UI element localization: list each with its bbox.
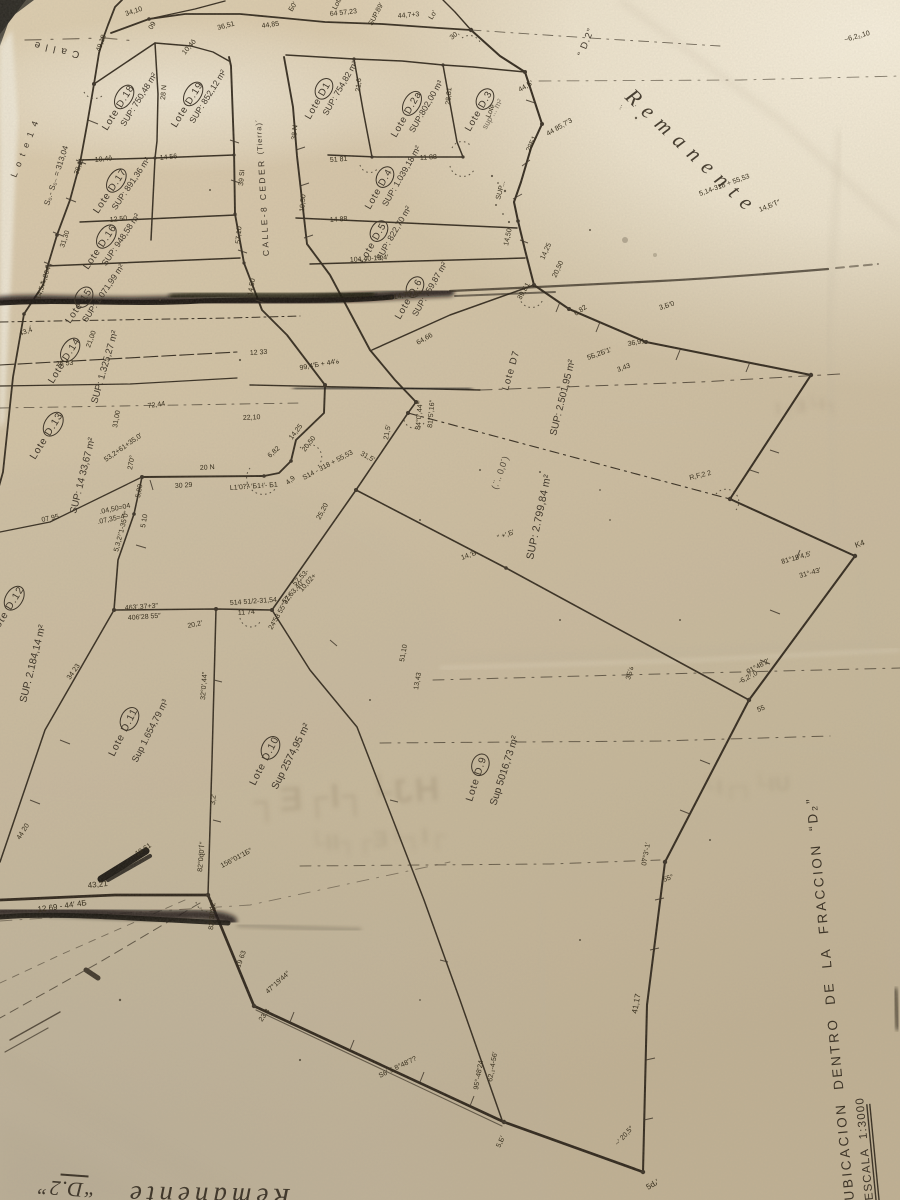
svg-text:14 88: 14 88 xyxy=(330,216,348,224)
svg-text:21,6′: 21,6′ xyxy=(355,76,363,92)
svg-text:51 81: 51 81 xyxy=(330,156,348,164)
svg-text:11 74: 11 74 xyxy=(238,609,256,617)
svg-text:11 88: 11 88 xyxy=(420,154,438,162)
svg-text:38 N: 38 N xyxy=(291,125,299,140)
svg-text:20 N: 20 N xyxy=(200,464,215,472)
svg-text:39 SI: 39 SI xyxy=(238,169,246,186)
svg-text:12 33: 12 33 xyxy=(250,349,268,357)
svg-text:28 N: 28 N xyxy=(160,85,168,100)
svg-text:25 53: 25 53 xyxy=(56,360,74,368)
svg-text:22,10: 22,10 xyxy=(243,414,261,422)
svg-text:30 29: 30 29 xyxy=(175,482,193,490)
svg-text:3,2′: 3,2′ xyxy=(210,793,218,805)
